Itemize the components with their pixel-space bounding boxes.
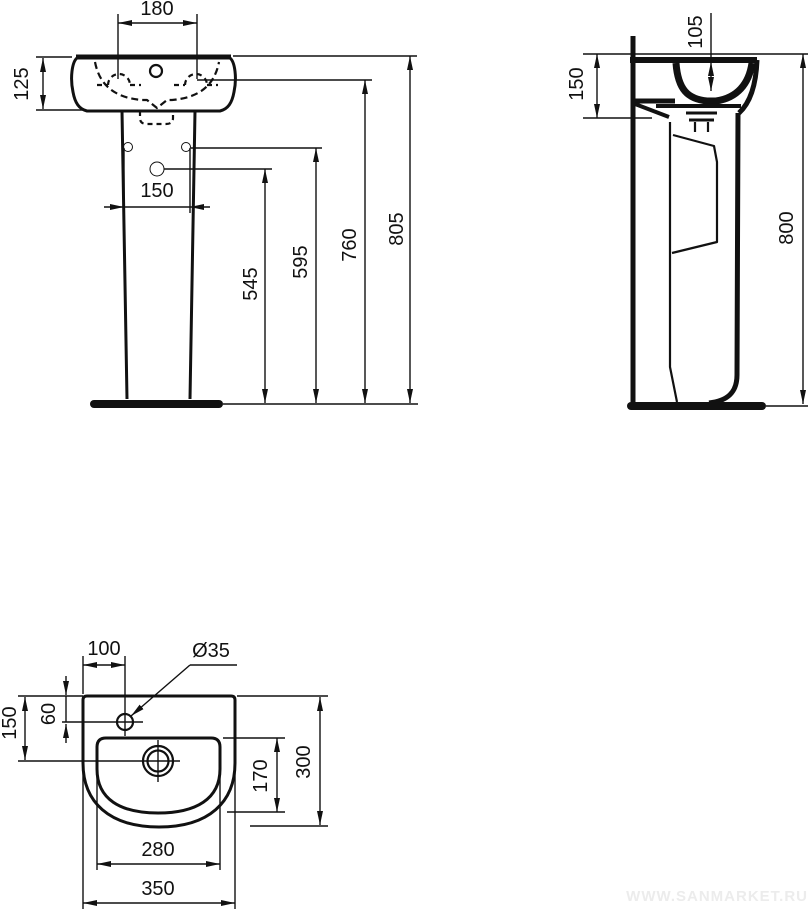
trap-pipe xyxy=(695,122,708,132)
washbasin-technical-drawing: 180 125 150 545 595 760 805 150 105 800 xyxy=(0,0,811,911)
dim-label-150-side: 150 xyxy=(566,67,588,100)
dim-label-170: 170 xyxy=(250,759,272,792)
pedestal-back-profile xyxy=(670,122,677,402)
front-view: 180 125 150 545 595 760 805 xyxy=(11,0,418,408)
faucet-hole xyxy=(150,65,162,77)
dim-label-125: 125 xyxy=(11,67,33,100)
site-watermark: WWW.SANMARKET.RU xyxy=(626,888,808,905)
dim-label-150-front: 150 xyxy=(140,180,173,202)
side-view: 150 105 800 xyxy=(566,13,808,410)
bowl-hidden-contour xyxy=(95,62,219,108)
dim-label-diameter-35: Ø35 xyxy=(192,640,230,662)
technical-drawing-page: 180 125 150 545 595 760 805 150 105 800 xyxy=(0,0,811,911)
dim-label-280: 280 xyxy=(141,839,174,861)
pedestal-sides xyxy=(122,111,195,399)
dim-label-545: 545 xyxy=(240,267,262,300)
fixing-hole-right xyxy=(182,143,191,152)
reference-lines xyxy=(36,14,417,213)
plan-reference-lines xyxy=(18,656,328,909)
top-view: 100 Ø35 60 150 170 300 280 350 xyxy=(0,638,328,909)
pedestal-inner-profile xyxy=(672,135,717,253)
dim-label-595: 595 xyxy=(290,245,312,278)
pedestal-base xyxy=(90,400,223,408)
tap-hole-leader xyxy=(131,665,190,716)
siphon-outlet-hole xyxy=(150,162,164,176)
dim-label-150-top: 150 xyxy=(0,706,21,739)
trap-flange-lines xyxy=(686,113,717,120)
dim-label-105: 105 xyxy=(685,15,707,48)
dim-label-60: 60 xyxy=(38,703,60,725)
dim-label-350: 350 xyxy=(141,878,174,900)
dim-label-805: 805 xyxy=(386,212,408,245)
dim-label-760: 760 xyxy=(339,228,361,261)
dim-label-100: 100 xyxy=(87,638,120,660)
fixing-hole-left xyxy=(124,143,133,152)
bowl-section xyxy=(676,63,752,101)
dim-label-180: 180 xyxy=(140,0,173,20)
dim-label-300: 300 xyxy=(293,745,315,778)
pedestal-front-profile xyxy=(709,113,738,403)
drain-hidden-outline xyxy=(140,111,173,124)
dim-label-800: 800 xyxy=(776,211,798,244)
pedestal-base-side xyxy=(627,402,766,410)
